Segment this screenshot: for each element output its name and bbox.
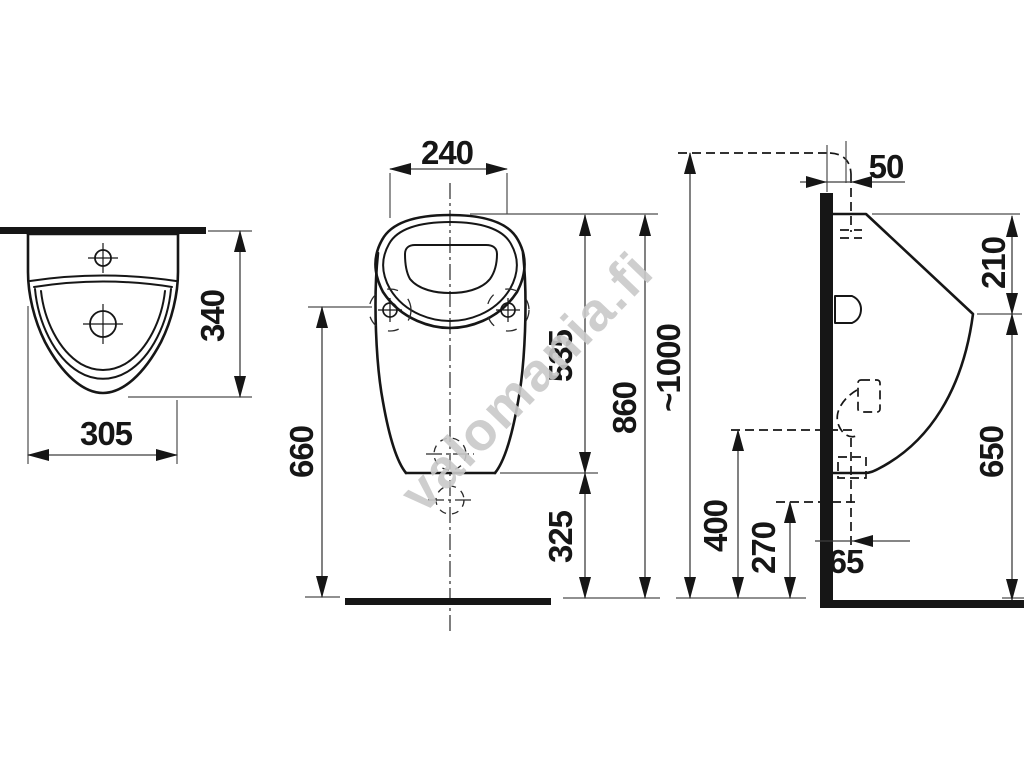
dimension-rim-to-spout: 210 xyxy=(975,216,1012,314)
dim-label-210: 210 xyxy=(975,237,1012,289)
side-view: 50 ~1000 210 650 400 270 xyxy=(650,141,1024,608)
dimension-spout-to-floor: 650 xyxy=(973,314,1012,600)
bowl-back-outline xyxy=(405,245,497,293)
floor-line xyxy=(820,600,1024,608)
dim-label-50: 50 xyxy=(869,148,904,185)
dim-label-270: 270 xyxy=(745,522,782,574)
dimension-installation-height: ~1000 xyxy=(650,153,690,598)
dim-label-65: 65 xyxy=(829,543,864,580)
inlet-spud-hole xyxy=(835,296,861,323)
outlet-hole-icon xyxy=(83,304,123,344)
dim-label-305: 305 xyxy=(80,415,133,452)
internal-trap-dashed xyxy=(837,380,880,558)
technical-drawing-page: 340 305 xyxy=(0,0,1024,768)
dim-label-325: 325 xyxy=(542,510,579,563)
dim-label-660: 660 xyxy=(283,426,320,478)
water-inlet-pipe-dashed xyxy=(678,153,862,238)
floor-line xyxy=(345,598,551,605)
dimension-outlet-to-floor: 325 xyxy=(542,473,585,598)
top-view: 340 305 xyxy=(0,227,252,464)
dimension-inlet-height: 400 xyxy=(697,430,738,598)
dim-label-240: 240 xyxy=(421,134,473,171)
dimension-holes-to-floor: 660 xyxy=(283,307,322,597)
dim-label-1000: ~1000 xyxy=(650,324,687,412)
dimension-rim-width: 240 xyxy=(390,134,507,218)
dim-label-340: 340 xyxy=(194,290,231,342)
dimension-top-depth: 340 xyxy=(128,231,252,397)
rim-back-edge-outer xyxy=(30,276,176,282)
inlet-hole-icon xyxy=(88,243,118,273)
fixing-hole-right-icon xyxy=(487,289,529,331)
urinal-side-profile xyxy=(833,214,973,473)
dimension-inlet-wall-offset: 50 xyxy=(800,148,905,188)
front-view: 240 660 535 325 860 xyxy=(283,134,660,632)
dimension-outlet-height: 270 xyxy=(745,502,790,598)
rim-back-edge-inner xyxy=(34,282,172,288)
dim-label-860: 860 xyxy=(606,382,643,434)
dim-label-650: 650 xyxy=(973,426,1010,478)
dim-label-400: 400 xyxy=(697,500,734,552)
urinal-dimension-drawing: 340 305 xyxy=(0,0,1024,768)
